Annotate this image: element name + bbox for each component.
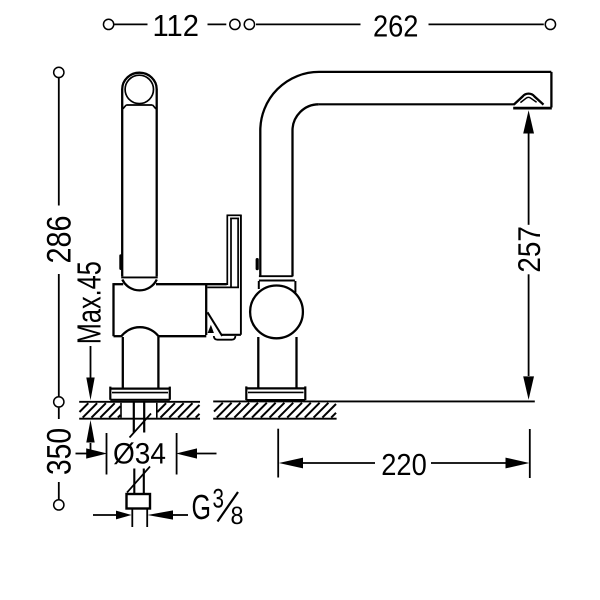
svg-text:257: 257 xyxy=(511,226,547,273)
svg-text:350: 350 xyxy=(41,428,79,475)
svg-text:3: 3 xyxy=(213,483,225,513)
svg-text:Ø34: Ø34 xyxy=(113,437,166,470)
svg-text:220: 220 xyxy=(381,448,427,482)
svg-text:112: 112 xyxy=(152,9,199,43)
svg-text:G: G xyxy=(192,488,212,527)
svg-text:Max.45: Max.45 xyxy=(72,261,109,344)
svg-text:286: 286 xyxy=(41,216,79,264)
svg-text:262: 262 xyxy=(373,9,419,43)
svg-text:8: 8 xyxy=(231,502,244,530)
